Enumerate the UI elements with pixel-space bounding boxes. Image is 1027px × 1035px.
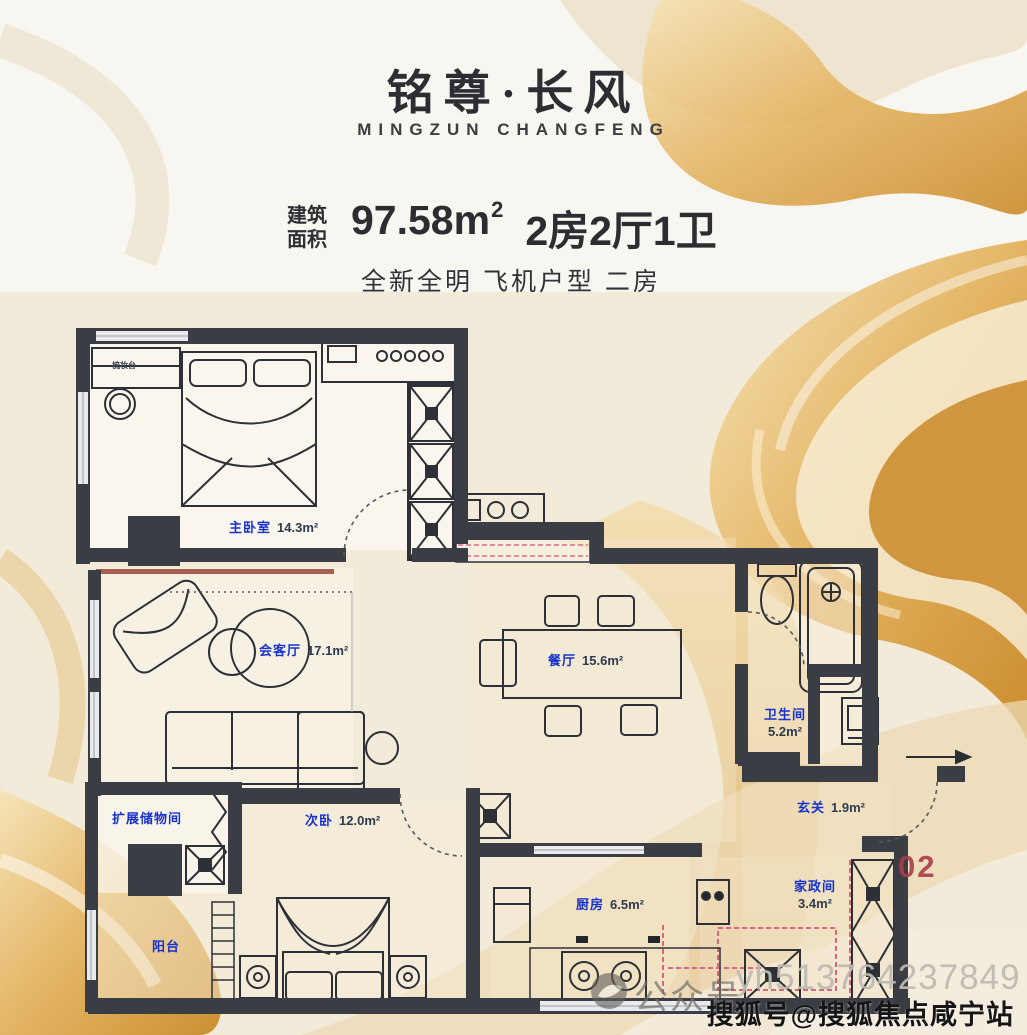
kitchen-mark-1 xyxy=(576,936,588,943)
tagline: 全新全明 飞机户型 二房 xyxy=(351,262,717,298)
area-spec: 97.58m2 2房2厅1卫 全新全明 飞机户型 二房 xyxy=(351,197,717,298)
unit-number: 02 xyxy=(898,849,936,885)
storage-column xyxy=(128,844,182,896)
kitchen-mark-2 xyxy=(648,936,660,943)
floorplan-drawing xyxy=(0,0,1027,1035)
entry-arrow xyxy=(906,751,970,763)
project-title: 铭尊·长风 xyxy=(0,54,1027,123)
label-entry: 玄关1.9m² xyxy=(797,797,865,816)
label-utility: 家政间3.4m² xyxy=(794,876,836,911)
room-fills xyxy=(89,344,894,1000)
label-second-bedroom: 次卧12.0m² xyxy=(305,810,380,829)
side-table xyxy=(366,732,398,764)
label-dressing-table: 梳妆台 xyxy=(112,360,136,371)
project-subtitle: MINGZUN CHANGFENG xyxy=(0,120,1027,140)
curtain-rail-line xyxy=(96,569,334,574)
watermark-wechat-id: yh513764237849 xyxy=(736,958,1021,998)
layout-spec: 2房2厅1卫 xyxy=(525,197,716,257)
area-sup: 2 xyxy=(491,199,503,221)
label-balcony: 阳台 xyxy=(152,936,180,955)
corridor-basin xyxy=(456,494,544,526)
watermark-logo-icon xyxy=(588,972,630,1010)
watermark-sohu: 搜狐号@搜狐焦点咸宁站 xyxy=(707,993,1014,1032)
label-living-room: 会客厅17.1m² xyxy=(259,640,348,659)
label-storage: 扩展储物间 xyxy=(112,808,182,827)
label-bathroom: 卫生间5.2m² xyxy=(764,704,806,739)
area-label: 建筑 面积 xyxy=(287,204,327,298)
label-kitchen: 厨房6.5m² xyxy=(576,894,644,913)
label-master-bedroom: 主卧室14.3m² xyxy=(229,517,318,536)
poster-canvas: 铭尊·长风 MINGZUN CHANGFENG 建筑 面积 97.58m2 2房… xyxy=(0,0,1027,1035)
area-info-block: 建筑 面积 97.58m2 2房2厅1卫 全新全明 飞机户型 二房 xyxy=(287,197,717,298)
area-value: 97.58m xyxy=(351,197,490,244)
label-dining-room: 餐厅15.6m² xyxy=(548,650,623,669)
